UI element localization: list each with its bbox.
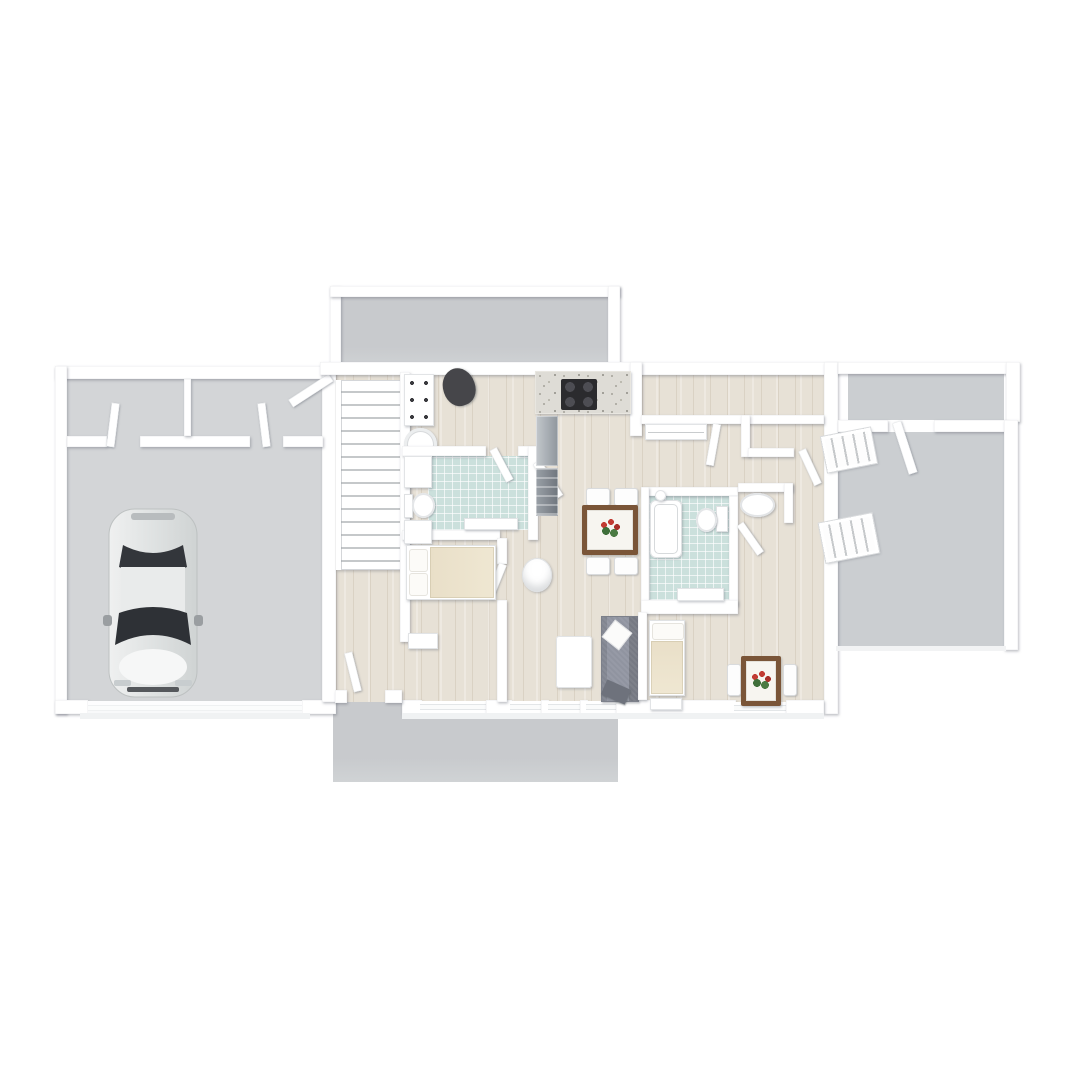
dining-chair-4 <box>614 557 638 575</box>
toilet2-bowl <box>696 508 717 532</box>
dining-chair-2 <box>614 488 638 506</box>
living-window-3 <box>586 701 618 713</box>
terrace-wall-right <box>608 286 620 368</box>
bed1-pillow-a <box>409 549 428 572</box>
bed3-blanket <box>651 641 683 694</box>
living-window-2 <box>548 701 582 713</box>
floor-plan-scene <box>0 0 1080 1080</box>
toilet1-bowl <box>412 493 435 518</box>
pedestal-sink <box>740 493 775 517</box>
terrace-wall-left <box>330 286 341 368</box>
kitchen-wall-right <box>630 362 642 436</box>
balcony-wall-top <box>838 362 1008 374</box>
dining-chair-1 <box>586 488 610 506</box>
coffee-table <box>556 636 592 688</box>
garage-wall-left <box>55 366 67 714</box>
vanity-1 <box>404 520 432 544</box>
house-wall-bottom-d <box>786 700 824 714</box>
bed3-pillow <box>652 623 684 640</box>
bedroom1-window <box>420 701 486 713</box>
round-stool <box>522 558 552 592</box>
bonus-wall-right <box>1004 420 1018 650</box>
garage-wall-bottom-right <box>302 700 336 714</box>
balcony-wall-right <box>1006 362 1020 422</box>
desk-chair-right <box>783 664 797 696</box>
bath1-wall-top-a <box>402 446 486 456</box>
storage-wall-bottom-b <box>140 436 250 447</box>
stair-wall-bottom-a <box>335 690 347 703</box>
car <box>103 505 203 701</box>
hall-lower-wall <box>748 448 794 457</box>
living-window-1 <box>510 701 543 713</box>
garage-stair-wall <box>322 366 336 702</box>
shower-mat <box>464 518 518 530</box>
garage-wall-top <box>55 366 325 379</box>
bed1-blanket <box>430 547 494 598</box>
bedroom1-wall-right-b <box>497 600 507 702</box>
bonus-floor-edge <box>836 646 1006 651</box>
vanity-2 <box>677 588 724 601</box>
stair-wall-bottom-b <box>385 690 402 703</box>
toilet2-tank <box>716 506 728 532</box>
staircase <box>336 380 410 570</box>
refrigerator <box>536 416 558 466</box>
garage-door-sill <box>80 713 310 719</box>
garage-wall-bottom-left <box>55 700 88 714</box>
nook-wall-right <box>784 483 793 523</box>
dresser-3 <box>650 698 682 710</box>
flower-vase <box>748 670 774 692</box>
bath2-wall-left <box>641 487 649 609</box>
terrace-wall-top <box>330 286 620 297</box>
upper-balcony-floor <box>848 374 1004 420</box>
bed1-pillow-b <box>409 573 428 596</box>
kitchen-lower-unit <box>536 468 558 516</box>
storage-divider-wall <box>184 379 191 436</box>
bottom-wall-sill <box>402 713 824 719</box>
storage-wall-bottom-a <box>67 436 107 447</box>
desk-chair-left <box>727 664 741 696</box>
bonus-wall-top-b <box>934 420 1008 432</box>
house-wall-bottom-a <box>402 700 422 714</box>
laundry-cabinet <box>404 374 434 426</box>
shower-head <box>655 490 666 501</box>
bedroom2-wall-bottom <box>641 415 824 424</box>
bathtub <box>650 500 682 558</box>
bath2-wall-right <box>729 496 738 606</box>
garage-door <box>88 701 302 713</box>
upper-terrace-floor <box>341 297 608 368</box>
dresser-1 <box>408 633 438 649</box>
house-wall-bottom-b <box>486 700 512 714</box>
flower-centerpiece <box>597 518 623 540</box>
closet-shelf <box>645 424 707 440</box>
bath2-wall-bottom <box>641 600 738 614</box>
cooktop <box>561 379 597 410</box>
living-bedroom3-wall <box>638 612 647 700</box>
dining-chair-3 <box>586 557 610 575</box>
bathroom1-cabinet <box>404 456 432 488</box>
storage-wall-bottom-c <box>283 436 323 447</box>
bedroom1-wall-right-a <box>497 538 507 564</box>
